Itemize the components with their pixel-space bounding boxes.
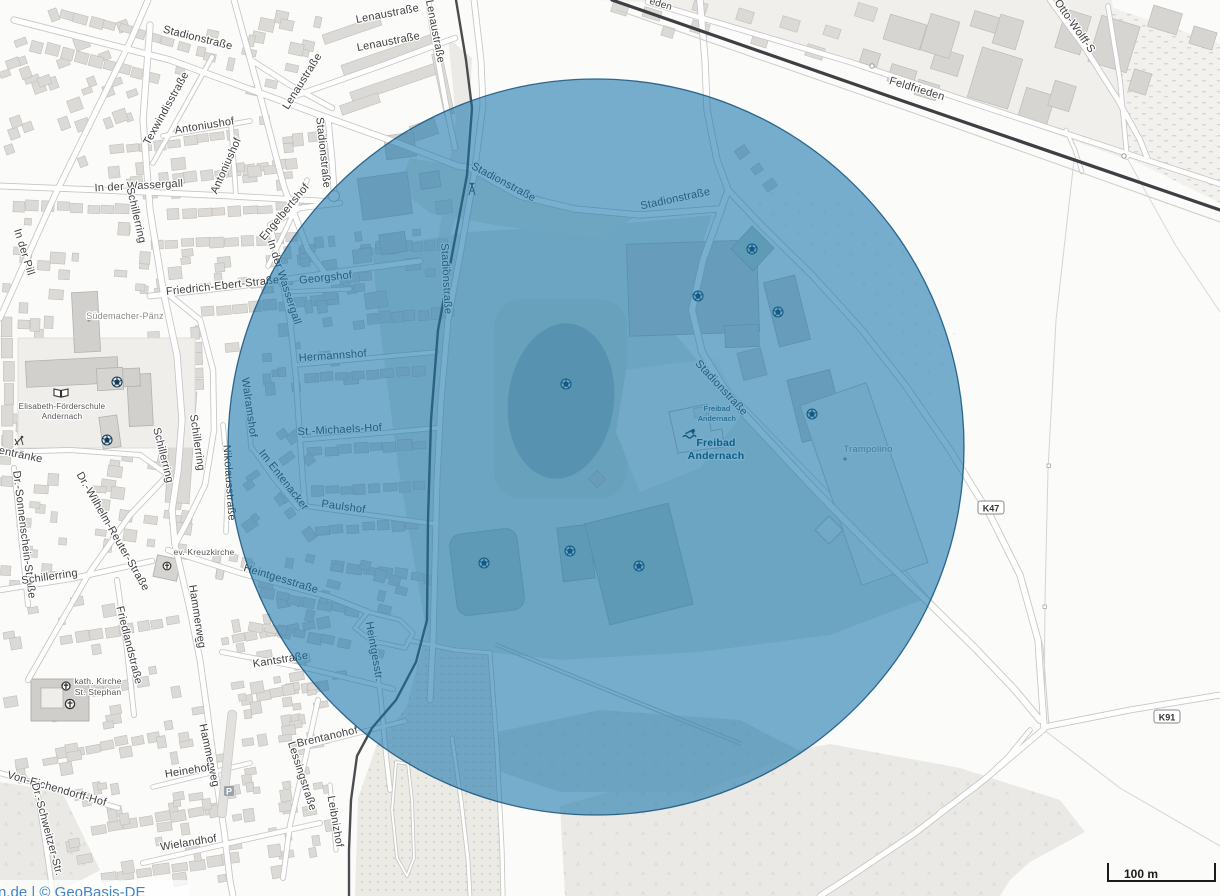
svg-text:Südemacher-Pänz: Südemacher-Pänz [86,311,164,321]
svg-text:Elisabeth-Förderschule: Elisabeth-Förderschule [19,402,106,411]
svg-text:P: P [226,786,232,796]
svg-text:ev. Kreuzkirche: ev. Kreuzkirche [174,547,235,557]
svg-text:St. Stephan: St. Stephan [75,687,122,697]
svg-text:K47: K47 [983,504,1000,514]
svg-text:K91: K91 [1159,713,1176,723]
svg-text:100 m: 100 m [1124,867,1158,881]
svg-text:Andernach: Andernach [42,412,83,421]
svg-text:kath. Kirche: kath. Kirche [74,676,121,686]
svg-text:n.de | © GeoBasis-DE: n.de | © GeoBasis-DE [0,884,146,896]
